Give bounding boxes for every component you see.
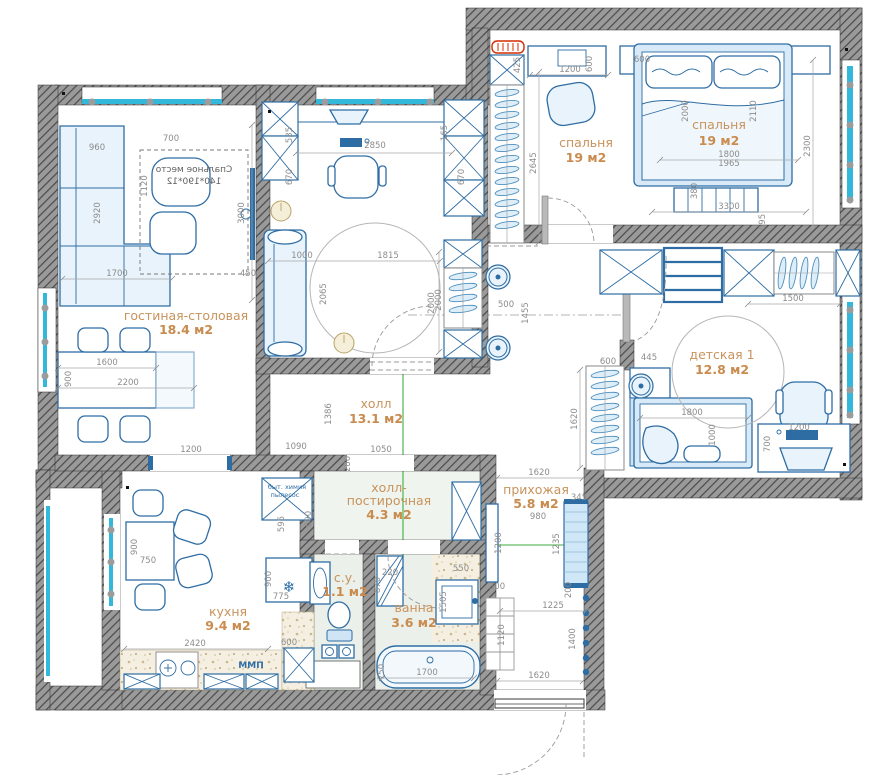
hanger-wardrobe bbox=[444, 268, 482, 328]
entrance-door-swing bbox=[495, 704, 566, 775]
living-room-furniture bbox=[58, 126, 255, 470]
dining-chair bbox=[78, 416, 108, 442]
dimension-label: 445 bbox=[641, 353, 657, 363]
dimension-label: 2000 bbox=[434, 289, 444, 311]
mullion-dot bbox=[847, 307, 854, 314]
dimension-label: 1050 bbox=[370, 445, 392, 455]
bedroom-door-leaf[interactable] bbox=[542, 196, 548, 244]
room-label: спальня bbox=[559, 135, 613, 150]
dimension-label: 695 bbox=[758, 214, 768, 230]
storage-note: пылесос bbox=[271, 491, 300, 499]
dryer-icon bbox=[339, 645, 354, 658]
dimension-label: 1620 bbox=[528, 671, 550, 681]
dimension-label: 220 bbox=[382, 568, 398, 578]
dimension-label: 690 bbox=[304, 511, 314, 527]
mullion-dot bbox=[847, 412, 854, 419]
radiator-dot bbox=[583, 669, 589, 675]
dimension-label: 700 bbox=[763, 436, 773, 452]
floor-plan-drawing: ❄ bbox=[0, 0, 896, 775]
dimension-label: 550 bbox=[453, 564, 469, 574]
kitchen-chair bbox=[174, 552, 214, 589]
room-area: 9.4 м2 bbox=[205, 618, 250, 633]
dimension-label: 1200 bbox=[559, 65, 581, 75]
window-balcony bbox=[46, 506, 50, 676]
bedroom-chair bbox=[545, 80, 597, 127]
dimension-label: 870 bbox=[373, 577, 383, 593]
room-label: холл bbox=[360, 396, 391, 411]
study-door-swing bbox=[372, 306, 432, 366]
dimension-label: 600 bbox=[600, 357, 616, 367]
wardrobe-unit bbox=[284, 648, 314, 682]
mullion-dot bbox=[847, 197, 854, 204]
sleeping-place-size: 140*190*12 bbox=[167, 177, 222, 187]
kitchen-chair bbox=[133, 490, 163, 516]
dimension-label: 1200 bbox=[494, 532, 504, 554]
wardrobe-unit bbox=[724, 250, 774, 296]
dining-chair bbox=[120, 416, 150, 442]
dimension-label: 670 bbox=[285, 169, 295, 185]
fan-icon bbox=[486, 336, 510, 360]
cooktop bbox=[156, 652, 198, 688]
sleeping-place-note: Спальное место bbox=[155, 165, 232, 175]
radiator-dot bbox=[583, 595, 589, 601]
dimension-label: 1620 bbox=[570, 408, 580, 430]
desk-chair bbox=[780, 448, 832, 470]
nightstand bbox=[790, 46, 830, 74]
small-sofa bbox=[264, 230, 306, 356]
mullion-dot bbox=[89, 99, 96, 106]
dimension-label: 750 bbox=[377, 664, 387, 680]
hanger-wardrobe bbox=[490, 85, 524, 243]
hanger-wardrobe bbox=[586, 366, 624, 470]
double-bed bbox=[634, 44, 792, 186]
sport-rack bbox=[664, 248, 722, 302]
dimension-label: 280 bbox=[343, 456, 353, 472]
mullion-dot bbox=[847, 162, 854, 169]
radiator-dot bbox=[583, 625, 589, 631]
dimension-label: 1225 bbox=[542, 601, 564, 611]
mullion-dot bbox=[322, 99, 329, 106]
dimension-label: 2110 bbox=[749, 100, 759, 122]
office-chair bbox=[334, 156, 378, 198]
mullion-dot bbox=[427, 99, 434, 106]
dimension-label: 1000 bbox=[291, 251, 313, 261]
room-label: детская 1 bbox=[689, 347, 754, 362]
floor-lamp-icon bbox=[334, 333, 354, 353]
dimension-label: 595 bbox=[277, 516, 287, 532]
mullion-dot bbox=[42, 373, 49, 380]
floor-plan-page: ❄ bbox=[0, 0, 896, 775]
pillow bbox=[684, 446, 720, 462]
room-area: 13.1 м2 bbox=[349, 411, 403, 426]
room-area: 5.8 м2 bbox=[513, 496, 558, 511]
room-area: 19 м2 bbox=[566, 150, 607, 165]
room-label: гостиная-столовая bbox=[124, 308, 248, 323]
fan-icon bbox=[486, 265, 510, 289]
bathtub bbox=[377, 646, 480, 688]
dimension-label: 1700 bbox=[416, 668, 438, 678]
dimension-label: 200 bbox=[564, 582, 574, 598]
dimension-label: 2300 bbox=[803, 135, 813, 157]
dimension-label: 900 bbox=[64, 371, 74, 387]
room-label: ванна bbox=[394, 600, 433, 615]
mullion-dot bbox=[42, 339, 49, 346]
wardrobe-unit bbox=[444, 240, 482, 268]
round-rug bbox=[310, 223, 440, 353]
washer-icon bbox=[322, 645, 337, 658]
mullion-dot bbox=[847, 387, 854, 394]
kitchen-chair bbox=[171, 507, 213, 546]
entrance-door[interactable] bbox=[495, 699, 584, 775]
wardrobe-unit bbox=[836, 250, 860, 296]
dimension-label: 960 bbox=[89, 143, 105, 153]
dimension-label: 300 bbox=[489, 582, 505, 592]
hanger-wardrobe bbox=[774, 252, 834, 294]
room-label: кухня bbox=[209, 604, 247, 619]
wardrobe-unit bbox=[444, 100, 484, 136]
room-area: 19 м2 bbox=[699, 133, 740, 148]
dimension-label: 3300 bbox=[718, 202, 740, 212]
room-label: спальня bbox=[692, 117, 746, 132]
dimension-label: 600 bbox=[281, 638, 297, 648]
monitor bbox=[340, 138, 362, 147]
dimension-label: 1000 bbox=[708, 424, 718, 446]
dining-chair bbox=[78, 328, 108, 352]
wardrobe-unit bbox=[600, 250, 662, 294]
mullion-dot bbox=[847, 122, 854, 129]
dimension-label: 1455 bbox=[521, 302, 531, 324]
dimension-label: 1090 bbox=[285, 442, 307, 452]
dimension-label: 345 bbox=[571, 493, 587, 503]
dining-chair bbox=[120, 328, 150, 352]
dimension-label: 900 bbox=[130, 539, 140, 555]
reference-mark bbox=[126, 486, 129, 489]
room-label: с.у. bbox=[334, 570, 356, 585]
dimension-label: 2000 bbox=[681, 100, 691, 122]
wardrobe-unit bbox=[444, 330, 482, 358]
mullion-dot bbox=[108, 559, 115, 566]
dimension-label: 1235 bbox=[552, 533, 562, 555]
dimension-label: 1505 bbox=[439, 591, 449, 613]
dimension-label: 1815 bbox=[377, 251, 399, 261]
mullion-dot bbox=[205, 99, 212, 106]
room-area: 1.1 м2 bbox=[322, 584, 367, 599]
radiator-dot bbox=[583, 655, 589, 661]
floor-lamp-icon bbox=[271, 201, 291, 221]
hall-wardrobe bbox=[564, 499, 588, 588]
dimension-label: 775 bbox=[273, 592, 289, 602]
dimension-label: 700 bbox=[163, 134, 179, 144]
dimension-label: 980 bbox=[530, 512, 546, 522]
reference-mark bbox=[843, 463, 846, 466]
dimension-label: 600 bbox=[634, 55, 650, 65]
dimension-label: 2850 bbox=[364, 141, 386, 151]
dimension-label: 3000 bbox=[237, 202, 247, 224]
radiator-icon bbox=[492, 41, 524, 53]
mullion-dot bbox=[42, 305, 49, 312]
room-label: постирочная bbox=[347, 493, 431, 508]
ottoman bbox=[150, 212, 196, 254]
dimension-label: 450 bbox=[240, 269, 256, 279]
room-area: 4.3 м2 bbox=[366, 507, 411, 522]
reference-mark bbox=[62, 92, 65, 95]
dimension-label: 1700 bbox=[106, 269, 128, 279]
kitchen-chair bbox=[135, 584, 165, 610]
dimension-label: 1800 bbox=[681, 408, 703, 418]
dimension-label: 2420 bbox=[184, 639, 206, 649]
dining-table-extension bbox=[156, 352, 194, 408]
dimension-label: 900 bbox=[264, 571, 274, 587]
dimension-label: 600 bbox=[585, 56, 595, 72]
radiator-dot bbox=[583, 640, 589, 646]
dimension-label: 425 bbox=[513, 57, 523, 73]
pillow bbox=[646, 56, 712, 88]
dimension-label: 2920 bbox=[93, 202, 103, 224]
dimension-label: 750 bbox=[140, 556, 156, 566]
dimension-label: 1620 bbox=[528, 468, 550, 478]
mullion-dot bbox=[108, 591, 115, 598]
dimension-label: 670 bbox=[457, 169, 467, 185]
window-children-right bbox=[847, 302, 853, 418]
mullion-dot bbox=[847, 347, 854, 354]
bed-bench bbox=[674, 188, 758, 212]
reference-mark bbox=[845, 48, 848, 51]
reference-mark bbox=[268, 110, 271, 113]
toilet bbox=[328, 602, 350, 628]
dimension-label: 1600 bbox=[96, 358, 118, 368]
dimension-label: 535 bbox=[285, 127, 295, 143]
room-label: прихожая bbox=[503, 482, 569, 497]
mullion-dot bbox=[375, 99, 382, 106]
dimension-label: 380 bbox=[690, 183, 700, 199]
pillow bbox=[714, 56, 780, 88]
dimension-label: 500 bbox=[498, 300, 514, 310]
wardrobe-unit bbox=[452, 482, 481, 540]
room-area: 12.8 м2 bbox=[695, 362, 749, 377]
dimension-label: 1200 bbox=[788, 423, 810, 433]
faucet-icon bbox=[472, 598, 478, 604]
dimension-label: 1386 bbox=[324, 403, 334, 425]
wardrobe-unit bbox=[204, 674, 244, 689]
dimension-label: 2200 bbox=[117, 378, 139, 388]
dimension-label: 1120 bbox=[497, 624, 507, 646]
dimension-label: 1120 bbox=[140, 175, 150, 197]
dimension-label: 1200 bbox=[180, 445, 202, 455]
dimension-label: 1500 bbox=[782, 294, 804, 304]
wardrobe-unit bbox=[124, 674, 160, 689]
fan-icon bbox=[629, 374, 653, 398]
wardrobe-unit bbox=[246, 674, 278, 689]
mullion-dot bbox=[108, 527, 115, 534]
storage-note: быт. химия bbox=[268, 483, 306, 491]
dimension-label: 2065 bbox=[319, 283, 329, 305]
dimension-label: 1400 bbox=[568, 628, 578, 650]
mullion-dot bbox=[147, 99, 154, 106]
dimension-label: 165 bbox=[440, 125, 450, 141]
dishwasher-label: ПММ bbox=[238, 661, 263, 671]
mullion-dot bbox=[847, 82, 854, 89]
dimension-label: 1965 bbox=[718, 159, 740, 169]
room-area: 3.6 м2 bbox=[391, 615, 436, 630]
room-area: 18.4 м2 bbox=[159, 322, 213, 337]
dimension-label: 2645 bbox=[529, 152, 539, 174]
